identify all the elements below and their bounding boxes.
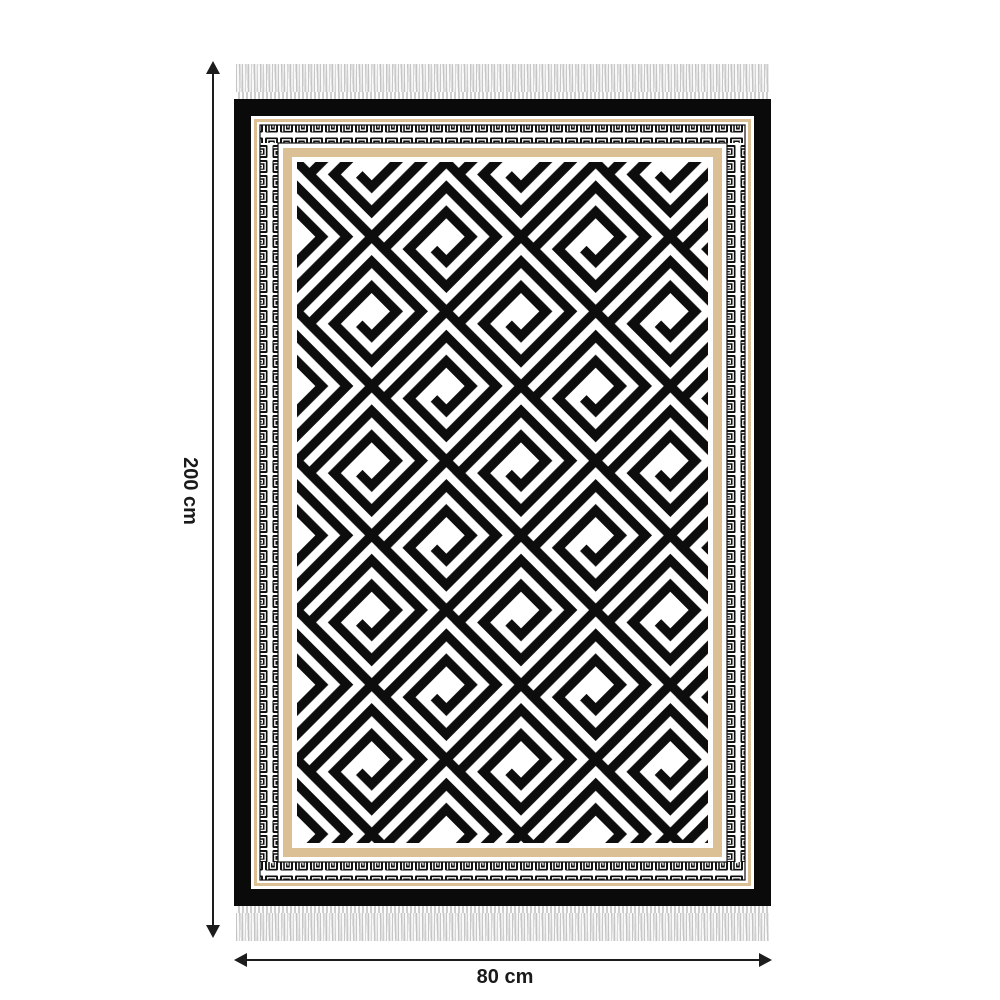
arrow-down-icon <box>206 925 220 938</box>
product-dimension-image: 200 cm 80 cm <box>0 0 1000 1000</box>
height-dimension-label: 200 cm <box>179 451 201 531</box>
rug-fringe-bottom <box>236 906 769 941</box>
arrow-up-icon <box>206 61 220 74</box>
arrow-right-icon <box>759 953 772 967</box>
rug-image <box>234 99 771 906</box>
height-arrow-line <box>212 68 214 934</box>
rug-fringe-top <box>236 64 769 99</box>
arrow-left-icon <box>234 953 247 967</box>
width-dimension-label: 80 cm <box>455 966 555 988</box>
width-arrow-line <box>243 959 761 961</box>
